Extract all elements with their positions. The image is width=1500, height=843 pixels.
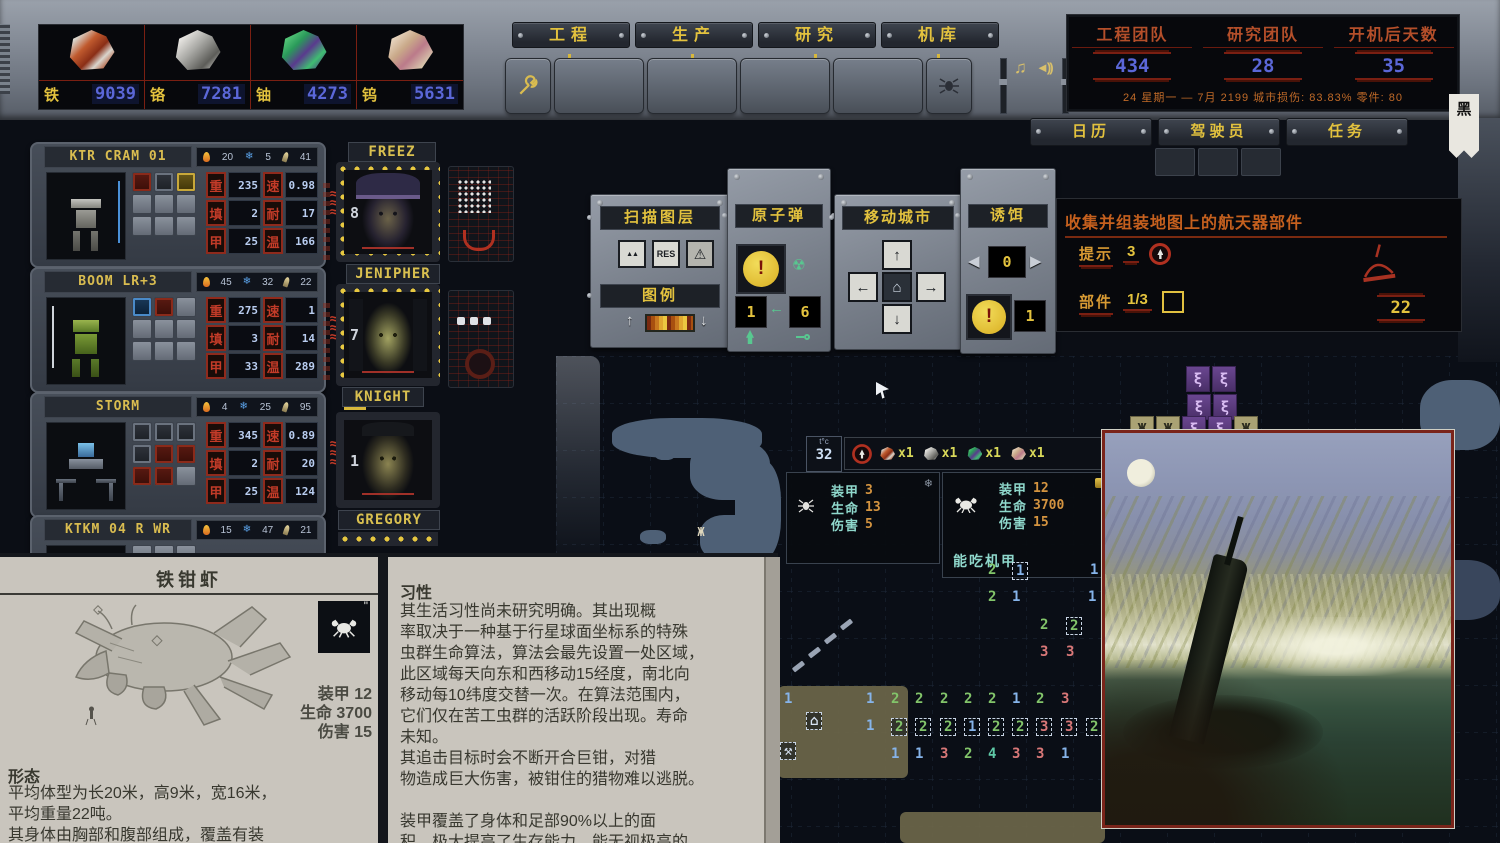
module-slot[interactable]	[176, 422, 196, 442]
top-tab[interactable]: 工程	[512, 22, 630, 48]
map-cloud-layer	[556, 356, 600, 571]
atomic-bomb-header: 原子弹	[735, 204, 823, 228]
tile-temp-label: t°c	[807, 437, 841, 447]
decoy-plus-button[interactable]: ▶	[1030, 252, 1042, 270]
resource-value: 9039	[92, 84, 139, 104]
map-cell[interactable]: 2	[964, 691, 972, 707]
creature-sprite[interactable]: Ж	[690, 520, 712, 544]
module-slot[interactable]	[154, 216, 174, 236]
map-cell[interactable]: ⌂	[806, 712, 822, 730]
module-slot[interactable]	[132, 216, 152, 236]
stat-label: 甲	[206, 228, 226, 254]
pilot-name: GREGORY	[338, 510, 440, 530]
pilot-level: 1	[350, 452, 359, 470]
stat-value: 14	[285, 325, 318, 351]
landmass	[640, 530, 666, 544]
iron-ore-icon	[880, 447, 895, 460]
module-slot[interactable]	[154, 341, 174, 361]
resource-name: 铬	[150, 84, 165, 105]
stat-value: 20	[285, 450, 318, 476]
counter: 研究团队 28	[1203, 21, 1323, 80]
mech-name: BOOM LR+3	[44, 271, 192, 293]
loot-item: x1	[924, 446, 958, 461]
heat-icon	[203, 525, 210, 535]
scan-layers-header: 扫描图层	[600, 206, 720, 230]
pilot-health-bar	[362, 493, 415, 495]
ammo-value: 21	[300, 525, 311, 536]
module-slot[interactable]	[176, 216, 196, 236]
stat-label: 耐	[263, 450, 283, 476]
hp-label: 生命	[831, 500, 859, 517]
stat-label: 速	[263, 297, 283, 323]
mech-panel[interactable]: BOOM LR+3 45 ❄32 22 重275 速1 填3 耐14 甲33 温…	[30, 267, 326, 393]
resource-value: 7281	[198, 84, 245, 104]
city-layer-button[interactable]: ▲▲	[618, 240, 646, 268]
mech-portrait[interactable]	[46, 297, 126, 385]
module-slot[interactable]	[132, 297, 152, 317]
stat-value: 33	[228, 353, 261, 379]
module-slot[interactable]	[176, 172, 196, 192]
stat-label: 填	[206, 200, 226, 226]
mech-badges: 4 ❄25 95	[196, 397, 318, 417]
move-south-button[interactable]: ↓	[882, 304, 912, 334]
module-slot[interactable]	[132, 194, 152, 214]
landmass-olive	[900, 812, 1105, 843]
counter-value: 35	[1355, 52, 1433, 80]
map-cell[interactable]: 2	[915, 718, 931, 736]
module-slot[interactable]	[132, 422, 152, 442]
map-cell[interactable]: 2	[891, 691, 899, 707]
module-slot[interactable]	[154, 466, 174, 486]
hp-value: 3700	[1033, 498, 1064, 515]
menu-button[interactable]: 任务	[1286, 118, 1408, 146]
stat-value: 3	[228, 325, 261, 351]
loot-qty: x1	[985, 446, 1001, 461]
resource-item[interactable]: 铀4273	[251, 25, 357, 109]
map-cell[interactable]: 1	[964, 718, 980, 736]
resource-name: 铁	[44, 84, 59, 105]
map-cell[interactable]: 3	[1066, 644, 1074, 660]
hint-label: 提示	[1079, 243, 1113, 267]
stat-value: 345	[228, 422, 261, 448]
stat-label: 填	[206, 450, 226, 476]
heat-icon	[203, 152, 210, 162]
parts-label: 部件	[1079, 291, 1113, 315]
bombs-ready-count: 1	[735, 296, 767, 328]
deploy-decoy-button[interactable]: !	[966, 294, 1012, 340]
map-cell[interactable]: 2	[1066, 617, 1082, 635]
ammo-value: 95	[300, 402, 311, 413]
speaker-icon[interactable]: ◄))	[1036, 60, 1052, 75]
cold-resist-icon: ❄	[924, 477, 933, 490]
page-scrollbar[interactable]	[764, 557, 780, 843]
module-slot[interactable]	[154, 444, 174, 464]
pilot-card-lights[interactable]	[338, 532, 438, 546]
tornado-sprite[interactable]: ξ	[1212, 366, 1236, 392]
top-tab[interactable]: 机库	[881, 22, 999, 48]
mech-badges: 20 ❄5 41	[196, 147, 318, 167]
cold-icon: ❄	[243, 525, 251, 535]
landmass	[655, 448, 675, 460]
launch-bomb-button[interactable]: !	[736, 244, 786, 294]
game-screen: 铁9039 铬7281 铀4273 钨5631 工程 生产 研究 机库	[0, 0, 1500, 843]
top-tab[interactable]: 研究	[758, 22, 876, 48]
resource-item[interactable]: 铁9039	[39, 25, 145, 109]
map-cell[interactable]: 2	[964, 746, 972, 762]
module-slot[interactable]	[176, 194, 196, 214]
radiation-icon: ☢	[792, 256, 805, 274]
legend-gradient-bar	[645, 314, 695, 332]
map-cell[interactable]: 3	[940, 746, 948, 762]
damage-value: 15	[1033, 515, 1049, 532]
map-cell[interactable]: 2	[1040, 617, 1048, 633]
mech-panel[interactable]: STORM 4 ❄25 95 重345 速0.89 填2 耐20 甲25 温12…	[30, 392, 326, 518]
cold-value: 5	[265, 152, 271, 163]
cold-value: 47	[262, 525, 273, 536]
map-cell[interactable]: 1	[866, 691, 874, 707]
tile-loot-bar: x1 x1 x1 x1	[844, 437, 1110, 470]
counter-value: 28	[1224, 52, 1302, 80]
map-cell[interactable]: 4	[988, 746, 996, 762]
danger-layer-button[interactable]: ⚠	[686, 240, 714, 268]
music-icon[interactable]: ♫	[1014, 58, 1027, 78]
module-slot-grid	[132, 297, 200, 383]
mech-stats: 重275 速1 填3 耐14 甲33 温289	[206, 297, 318, 383]
tungsten-ore-icon	[387, 30, 433, 70]
heat-value: 15	[221, 525, 232, 536]
bombs-stock-count: 6	[789, 296, 821, 328]
landmass-olive	[778, 686, 908, 778]
map-cell[interactable]: 3	[1040, 644, 1048, 660]
stat-value: 166	[285, 228, 318, 254]
quest-title: 收集并组装地图上的航天器部件	[1065, 209, 1447, 238]
stat-label: 填	[206, 325, 226, 351]
map-cell[interactable]: 1	[1012, 562, 1028, 580]
counter-value: 434	[1093, 52, 1171, 80]
map-cell[interactable]: 2	[940, 691, 948, 707]
counter-label: 开机后天数	[1334, 21, 1454, 48]
stat-label: 温	[263, 353, 283, 379]
map-cell[interactable]: 1	[866, 718, 874, 734]
decor-tape	[323, 300, 330, 380]
parts-value: 1/3	[1123, 291, 1152, 311]
loot-item: x1	[967, 446, 1001, 461]
move-west-button[interactable]: ←	[848, 272, 878, 302]
transfer-arrow-icon[interactable]: ←	[769, 300, 784, 317]
map-cell[interactable]: 2	[940, 718, 956, 736]
mech-name: STORM	[44, 396, 192, 418]
date-status-line: 24 星期一 — 7月 2199 城市损伤: 83.83% 零件: 80	[1067, 89, 1459, 105]
tornado-sprite[interactable]: ξ	[1186, 366, 1210, 392]
decoy-selected-count: 0	[988, 246, 1026, 278]
cold-icon: ❄	[239, 402, 247, 412]
iron-ore-icon	[69, 30, 115, 70]
map-cell[interactable]: 2	[988, 589, 996, 605]
mech-portrait[interactable]	[46, 172, 126, 260]
wrench-icon	[517, 75, 539, 97]
cold-value: 32	[262, 277, 273, 288]
damage-value: 5	[865, 517, 873, 534]
pilot-card[interactable]: 1	[336, 412, 440, 508]
heat-value: 20	[222, 152, 233, 163]
heat-value: 45	[221, 277, 232, 288]
tile-temp-value: 32	[807, 447, 841, 463]
map-cell[interactable]: 1	[915, 746, 923, 762]
name-underline	[344, 407, 366, 410]
crab-icon	[953, 495, 979, 518]
module-slot[interactable]	[154, 172, 174, 192]
module-slot[interactable]	[176, 444, 196, 464]
map-cell[interactable]: 2	[1012, 718, 1028, 736]
plunger-icon	[1354, 240, 1403, 296]
pilot-level: 8	[350, 204, 359, 222]
resource-item[interactable]: 铬7281	[145, 25, 251, 109]
creature-thumb[interactable]	[318, 601, 370, 653]
stat-value: 235	[228, 172, 261, 198]
menu-slot[interactable]	[1155, 148, 1195, 176]
coil-icon	[457, 179, 491, 213]
module-slot[interactable]	[154, 194, 174, 214]
mech-panel[interactable]: KTR CRAM 01 20 ❄5 41 重235 速0.98 填2 耐17 甲…	[30, 142, 326, 268]
repair-button[interactable]	[505, 58, 551, 114]
armor-label: 装甲	[999, 481, 1027, 498]
map-cell[interactable]: 2	[1086, 718, 1102, 736]
loot-item: x1	[880, 446, 914, 461]
module-slot[interactable]	[132, 341, 152, 361]
decoy-minus-button[interactable]: ◀	[968, 252, 980, 270]
move-city-header: 移动城市	[842, 206, 954, 230]
loot-qty: x1	[942, 446, 958, 461]
music-volume-slider[interactable]	[1000, 58, 1007, 114]
toolbar-slot-button[interactable]	[833, 58, 923, 114]
move-east-button[interactable]: →	[916, 272, 946, 302]
uranium-ore-icon	[967, 447, 982, 460]
pilot-name: KNIGHT	[342, 387, 424, 407]
map-cell[interactable]: 3	[1036, 746, 1044, 762]
cold-value: 25	[260, 402, 271, 413]
stat-value: 25	[228, 228, 261, 254]
tile-info-box: t°c 32	[806, 436, 842, 472]
map-cell[interactable]: 2	[891, 718, 907, 736]
map-cell[interactable]: 1	[784, 691, 792, 707]
habits-text: 其生活习性尚未研究明确。其出现概 率取决于一种基于行星球面坐标系的特殊 虫群生命…	[400, 601, 760, 843]
stat-value: 289	[285, 353, 318, 379]
pilot-level: 7	[350, 326, 359, 344]
legend-header: 图例	[600, 284, 720, 308]
pilot-name: JENIPHER	[346, 264, 440, 284]
module-slot[interactable]	[176, 297, 196, 317]
pilot-health-bar	[362, 247, 415, 249]
stat-value: 0.89	[285, 422, 318, 448]
resource-name: 钨	[362, 84, 377, 105]
menu-buttons: 日历 驾驶员 任务	[1030, 118, 1408, 146]
toolbar-slot-button[interactable]	[740, 58, 830, 114]
armor-value: 12	[1033, 481, 1049, 498]
stat-label: 速	[263, 172, 283, 198]
city-home-button[interactable]: ⌂	[882, 272, 912, 302]
map-cell[interactable]: 3	[1061, 691, 1069, 707]
map-cell[interactable]: 2	[988, 718, 1004, 736]
hp-value: 13	[865, 500, 881, 517]
pilot-gear-panel[interactable]	[448, 166, 514, 262]
habits-heading: 习性	[400, 579, 432, 603]
menu-slot[interactable]	[1198, 148, 1238, 176]
module-slot[interactable]	[154, 297, 174, 317]
map-cell[interactable]: 1	[891, 746, 899, 762]
top-tab[interactable]: 生产	[635, 22, 753, 48]
pilot-card[interactable]: 8	[336, 162, 440, 262]
stat-value: 17	[285, 200, 318, 226]
resource-item[interactable]: 钨5631	[357, 25, 463, 109]
button-lights-icon	[457, 317, 501, 327]
heat-icon	[203, 402, 210, 412]
damage-label: 伤害	[999, 515, 1027, 532]
menu-slot[interactable]	[1241, 148, 1281, 176]
legend-down-arrow[interactable]: ↓	[700, 312, 708, 329]
resource-name: 铀	[256, 84, 271, 105]
silo-icon	[796, 334, 810, 342]
counter-label: 研究团队	[1203, 21, 1323, 48]
stat-value: 124	[285, 478, 318, 504]
cold-icon: ❄	[245, 152, 253, 162]
loot-qty: x1	[1029, 446, 1045, 461]
chrome-ore-icon	[175, 30, 221, 70]
map-cell[interactable]: 2	[988, 691, 996, 707]
mech-badges: 15 ❄47 21	[196, 520, 318, 540]
module-slot[interactable]	[176, 341, 196, 361]
morphology-text: 平均体型为长20米，高9米，宽16米， 平均重量22吨。 其身体由胸部和腹部组成…	[8, 783, 376, 843]
stat-value: 2	[228, 200, 261, 226]
swarm-button[interactable]	[926, 58, 972, 114]
map-cell[interactable]: ⚒	[780, 742, 796, 760]
page-seam	[378, 557, 388, 843]
mech-sprite	[47, 298, 125, 384]
resource-layer-button[interactable]: RES	[652, 240, 680, 268]
map-cell[interactable]: 3	[1061, 718, 1077, 736]
cold-icon: ❄	[243, 277, 251, 287]
ammo-icon	[283, 276, 291, 287]
legend-up-arrow[interactable]: ↑	[626, 312, 634, 329]
moon-icon	[1127, 459, 1155, 487]
tungsten-ore-icon	[1011, 447, 1026, 460]
module-slot[interactable]	[176, 466, 196, 486]
module-slot-grid	[132, 172, 200, 258]
map-cell[interactable]: 1	[1090, 562, 1098, 578]
module-slot[interactable]	[132, 319, 152, 339]
quest-days-left: 22	[1377, 295, 1425, 321]
module-slot[interactable]	[154, 422, 174, 442]
hint-value: 3	[1123, 243, 1139, 263]
mech-name: KTR CRAM 01	[44, 146, 192, 168]
counters-panel: 工程团队 434 研究团队 28 开机后天数 35 24 星期一 — 7月 21…	[1066, 14, 1460, 112]
map-cell[interactable]: 2	[915, 691, 923, 707]
stat-label: 重	[206, 172, 226, 198]
resource-value: 4273	[304, 84, 351, 104]
black-banner-icon[interactable]: 黑	[1449, 94, 1479, 158]
part-marker-icon	[852, 444, 872, 464]
map-cell[interactable]: 1	[1012, 691, 1020, 707]
menu-button[interactable]: 驾驶员	[1158, 118, 1280, 146]
title-underline	[0, 593, 378, 595]
decoy-stock-count: 1	[1014, 300, 1046, 332]
toolbar-slot-button[interactable]	[554, 58, 644, 114]
small-bug-icon	[797, 499, 815, 518]
map-cell[interactable]: 1	[1061, 746, 1069, 762]
uranium-ore-icon	[281, 30, 327, 70]
damage-label: 伤害	[831, 517, 859, 534]
stat-label: 耐	[263, 200, 283, 226]
encyclopedia-title: 铁钳虾	[0, 566, 378, 592]
stat-label: 速	[263, 422, 283, 448]
stat-value: 1	[285, 297, 318, 323]
mech-stats: 重235 速0.98 填2 耐17 甲25 温166	[206, 172, 318, 258]
stat-label: 温	[263, 478, 283, 504]
pilot-card[interactable]: 7	[336, 284, 440, 386]
ammo-icon	[281, 151, 289, 162]
stat-label: 温	[263, 228, 283, 254]
stat-label: 重	[206, 422, 226, 448]
pilot-health-bar	[362, 371, 415, 373]
counter: 工程团队 434	[1072, 21, 1192, 80]
pilot-gear-panel[interactable]	[448, 290, 514, 388]
heat-icon	[203, 277, 210, 287]
module-slot[interactable]	[132, 444, 152, 464]
ammo-value: 22	[300, 277, 311, 288]
ammo-value: 41	[300, 152, 311, 163]
decor-tape	[323, 180, 330, 260]
map-cell[interactable]: 2	[988, 562, 996, 578]
creature-info-small: ❄ 装甲3 生命13 伤害5	[786, 472, 940, 564]
mech-portrait[interactable]	[46, 422, 126, 510]
event-scene-image	[1102, 430, 1454, 828]
encyclopedia-window: 铁钳虾	[0, 553, 778, 843]
map-cell[interactable]: 1	[1088, 589, 1096, 605]
module-slot[interactable]	[132, 172, 152, 192]
counter: 开机后天数 35	[1334, 21, 1454, 80]
part-marker-icon[interactable]	[1149, 243, 1171, 265]
mech-stats: 重345 速0.89 填2 耐20 甲25 温124	[206, 422, 318, 508]
module-slot[interactable]	[176, 319, 196, 339]
map-cell[interactable]: 3	[1036, 718, 1052, 736]
toolbar-slot-button[interactable]	[647, 58, 737, 114]
stat-value: 275	[228, 297, 261, 323]
creature-stats: 装甲 12 生命 3700 伤害 15	[200, 685, 372, 742]
mech-badges: 45 ❄32 22	[196, 272, 318, 292]
spider-icon	[938, 77, 960, 95]
module-slot[interactable]	[154, 319, 174, 339]
parts-checkbox	[1162, 291, 1184, 313]
move-north-button[interactable]: ↑	[882, 240, 912, 270]
hp-label: 生命	[999, 498, 1027, 515]
menu-button[interactable]: 日历	[1030, 118, 1152, 146]
map-cell[interactable]: 2	[1036, 691, 1044, 707]
mech-sprite	[47, 173, 125, 259]
stat-value: 2	[228, 450, 261, 476]
armor-value: 3	[865, 483, 873, 500]
stat-value: 0.98	[285, 172, 318, 198]
mech-name: KTKM 04 R WR	[44, 519, 192, 541]
stat-value: 25	[228, 478, 261, 504]
gauge-icon	[465, 349, 495, 379]
stat-label: 甲	[206, 478, 226, 504]
ammo-icon	[281, 401, 289, 412]
loot-qty: x1	[898, 446, 914, 461]
quest-panel: 收集并组装地图上的航天器部件 提示 3 部件 1/3 22	[1056, 198, 1462, 332]
module-slot[interactable]	[132, 466, 152, 486]
map-cell[interactable]: 1	[1012, 589, 1020, 605]
module-slot-grid	[132, 422, 200, 508]
map-cell[interactable]: 3	[1012, 746, 1020, 762]
